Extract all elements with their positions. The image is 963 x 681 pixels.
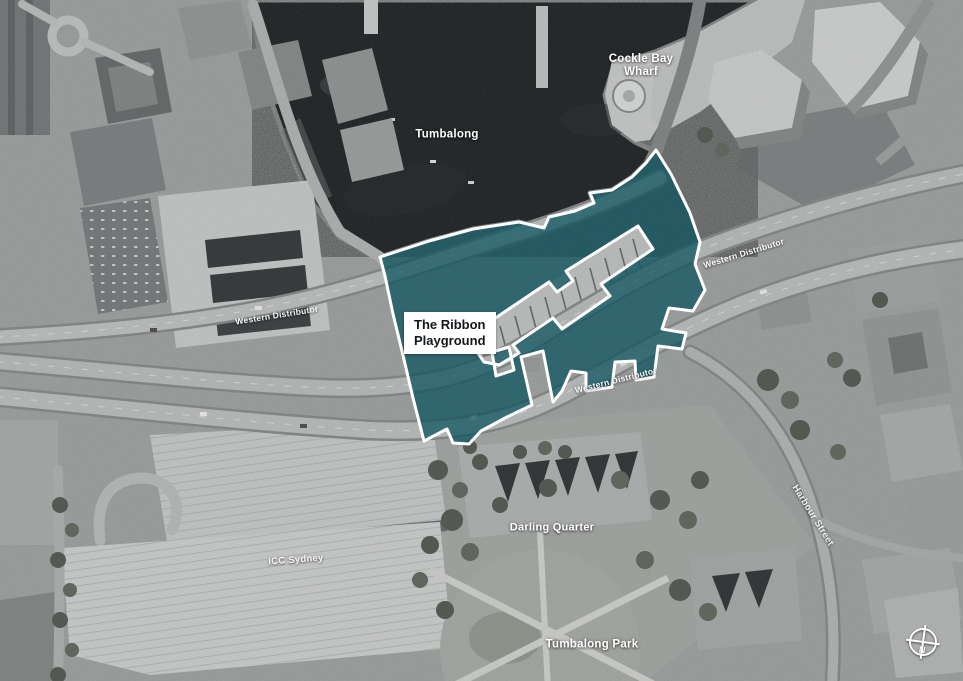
site-callout: The Ribbon Playground — [404, 312, 496, 354]
site-callout-line2: Playground — [414, 333, 486, 349]
aerial-map: The Ribbon Playground N TumbalongCockle … — [0, 0, 963, 681]
site-callout-line1: The Ribbon — [414, 317, 486, 333]
compass-north-letter: N — [918, 645, 926, 656]
north-compass-icon: N — [901, 620, 945, 664]
